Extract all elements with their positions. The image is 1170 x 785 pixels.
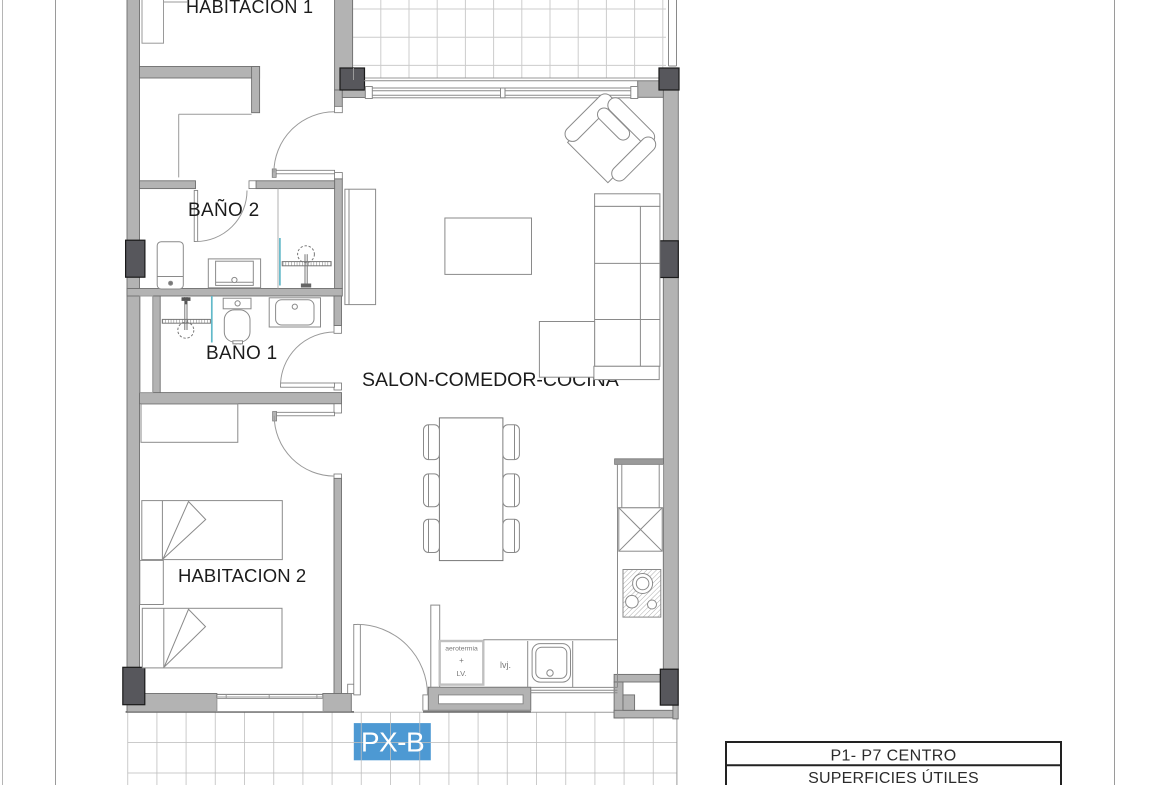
svg-text:PX-B: PX-B [361, 727, 424, 758]
svg-text:SUPERFICIES ÚTILES: SUPERFICIES ÚTILES [808, 768, 979, 785]
svg-text:HABITACION 1: HABITACION 1 [186, 0, 313, 17]
svg-text:P1- P7 CENTRO: P1- P7 CENTRO [830, 748, 956, 765]
svg-text:BAÑO 2: BAÑO 2 [188, 199, 260, 221]
svg-text:+: + [459, 656, 464, 665]
svg-text:aerotermia: aerotermia [445, 646, 478, 653]
svg-text:lvj.: lvj. [500, 660, 511, 670]
svg-text:LV.: LV. [456, 669, 466, 678]
svg-text:BAÑO 1: BAÑO 1 [206, 342, 278, 364]
svg-text:HABITACION 2: HABITACION 2 [178, 565, 306, 586]
